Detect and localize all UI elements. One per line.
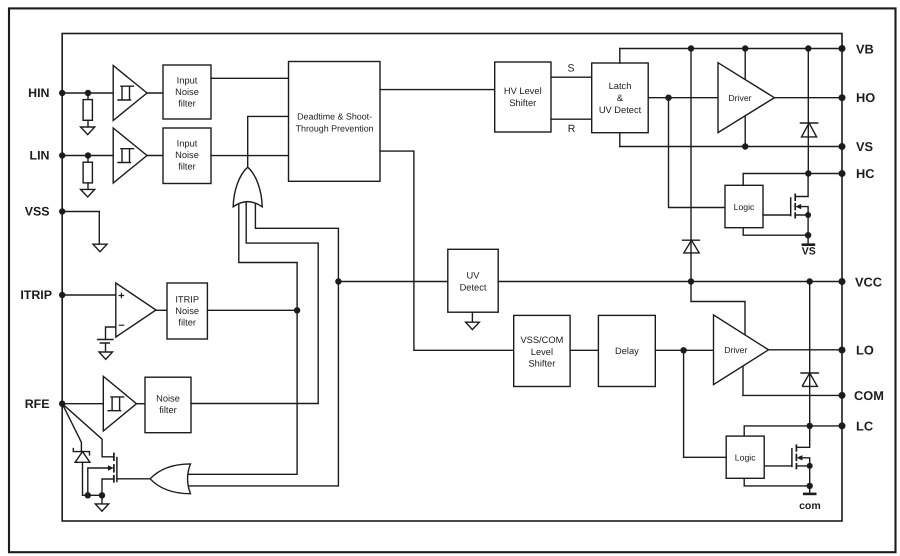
- svg-text:VS: VS: [802, 246, 816, 258]
- svg-text:filter: filter: [159, 405, 177, 415]
- svg-text:Latch: Latch: [609, 81, 632, 91]
- svg-text:Input: Input: [177, 139, 198, 149]
- svg-text:VCC: VCC: [855, 274, 882, 289]
- svg-text:com: com: [799, 500, 821, 512]
- svg-text:Shifter: Shifter: [528, 359, 555, 369]
- svg-text:ITRIP: ITRIP: [20, 288, 52, 302]
- svg-text:HV Level: HV Level: [504, 86, 542, 96]
- svg-text:UV Detect: UV Detect: [599, 105, 642, 115]
- svg-text:Logic: Logic: [735, 453, 756, 463]
- svg-text:filter: filter: [178, 162, 196, 172]
- svg-text:Noise: Noise: [156, 394, 180, 404]
- svg-text:VS: VS: [856, 139, 874, 154]
- svg-text:Shifter: Shifter: [509, 98, 536, 108]
- svg-text:Noise: Noise: [175, 306, 199, 316]
- svg-text:Deadtime & Shoot-: Deadtime & Shoot-: [297, 112, 372, 122]
- svg-text:filter: filter: [178, 99, 196, 109]
- svg-text:Detect: Detect: [460, 283, 487, 293]
- svg-text:Through Prevention: Through Prevention: [296, 123, 374, 133]
- svg-text:Noise: Noise: [175, 150, 199, 160]
- svg-text:HO: HO: [856, 90, 875, 105]
- svg-text:Logic: Logic: [734, 202, 755, 212]
- svg-text:S: S: [567, 63, 574, 75]
- svg-text:HIN: HIN: [28, 86, 49, 100]
- svg-text:COM: COM: [854, 388, 884, 403]
- svg-text:VSS/COM: VSS/COM: [520, 335, 563, 345]
- svg-text:R: R: [568, 123, 576, 135]
- svg-text:&: &: [617, 93, 624, 103]
- svg-text:VSS: VSS: [25, 205, 50, 219]
- svg-text:UV: UV: [467, 271, 481, 281]
- svg-text:Driver: Driver: [728, 93, 751, 103]
- svg-text:Input: Input: [177, 76, 198, 86]
- svg-text:LIN: LIN: [30, 149, 50, 163]
- svg-text:VB: VB: [856, 41, 874, 56]
- svg-text:ITRIP: ITRIP: [175, 295, 199, 305]
- svg-text:Driver: Driver: [724, 345, 747, 355]
- svg-text:Delay: Delay: [615, 346, 639, 356]
- svg-text:LC: LC: [856, 419, 873, 434]
- svg-text:Noise: Noise: [175, 87, 199, 97]
- svg-text:HC: HC: [856, 166, 874, 181]
- svg-text:RFE: RFE: [25, 397, 50, 411]
- svg-text:LO: LO: [856, 343, 874, 358]
- svg-text:Level: Level: [531, 347, 553, 357]
- svg-text:filter: filter: [178, 318, 196, 328]
